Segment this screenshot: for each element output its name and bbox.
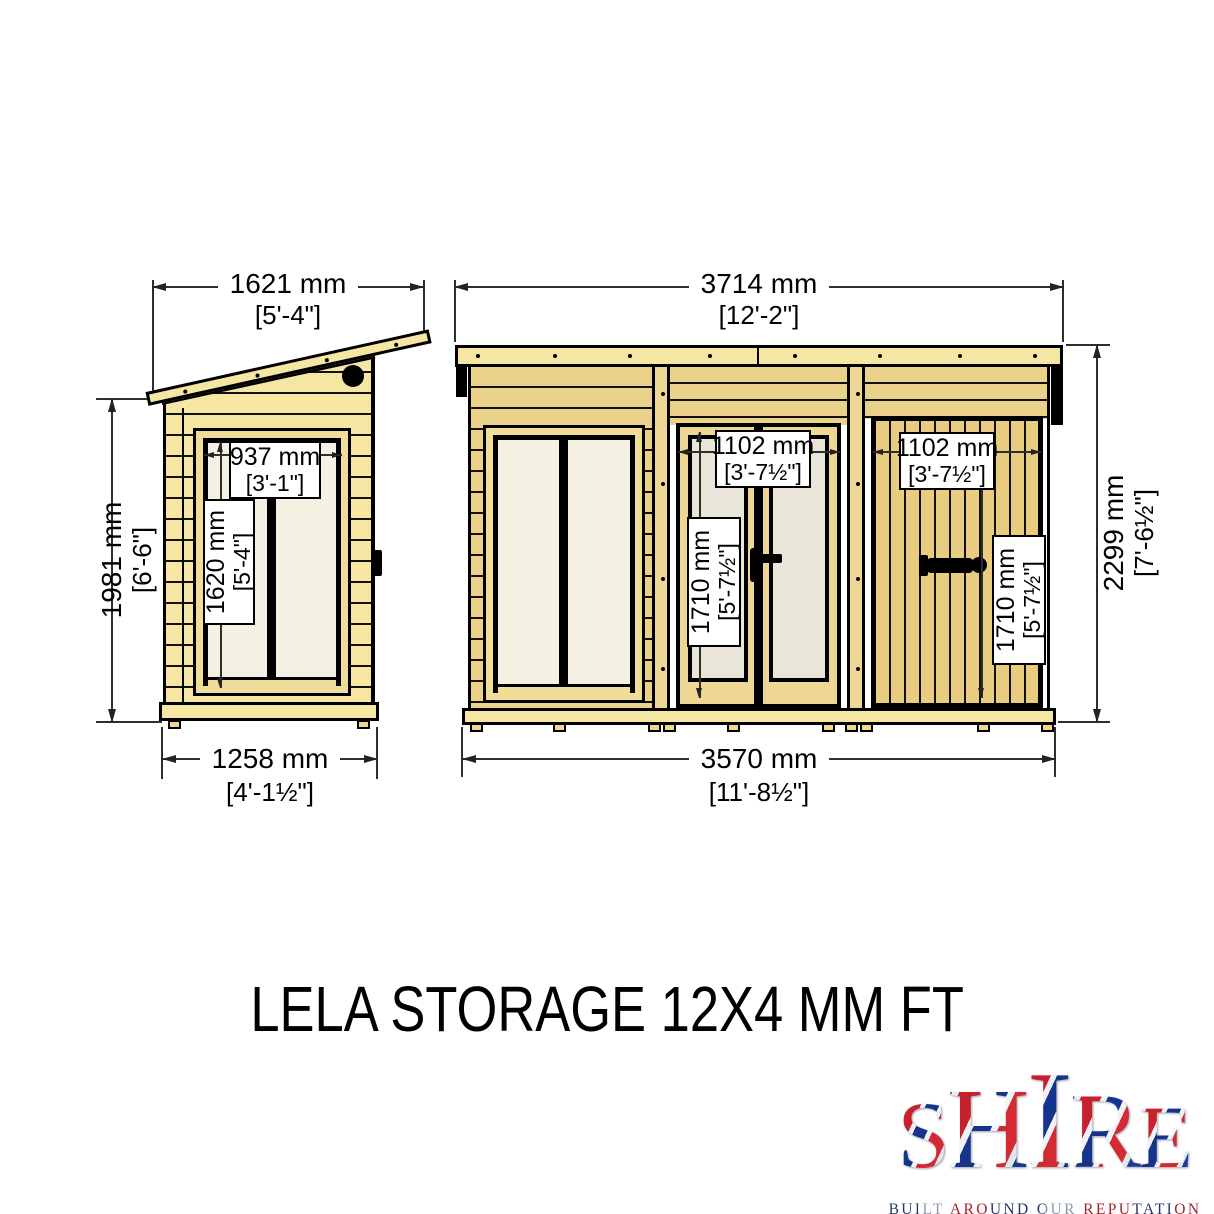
- screw-dot: [1033, 354, 1037, 358]
- fascia-seam: [757, 348, 759, 364]
- screw-dot: [856, 577, 860, 581]
- fascia-right-endcap: [1051, 367, 1063, 425]
- dim-label-mm: 3570 mm: [689, 743, 829, 774]
- side-wall-right-edge: [371, 357, 375, 702]
- drawing-title: LELA STORAGE 12X4 MM FT: [0, 972, 1214, 1046]
- shire-logo-wordmark: S H I R E: [878, 1040, 1212, 1201]
- dim-label-mm: 1102 mm: [712, 433, 814, 461]
- front-fascia-board: [455, 345, 1063, 367]
- screw-dot: [661, 392, 665, 396]
- screw-dot: [661, 577, 665, 581]
- bay-divider-trim: [847, 367, 865, 712]
- floor-bearer-foot: [357, 720, 370, 729]
- bay-divider-trim: [652, 367, 670, 712]
- door-handle-lever: [760, 554, 782, 563]
- floor-bearer-foot: [168, 720, 181, 729]
- front-base-rail: [462, 708, 1056, 725]
- dim-label-mm: 1710 mm: [993, 548, 1021, 652]
- side-corner-trim-line: [182, 408, 184, 702]
- logo-letter: R: [1070, 1071, 1141, 1194]
- dim-label-mm: 1621 mm: [218, 268, 358, 299]
- screw-dot: [324, 358, 329, 363]
- screw-dot: [856, 482, 860, 486]
- hasp-latch-eye: [971, 557, 987, 573]
- logo-letter: I: [1026, 1040, 1073, 1201]
- screw-dot: [878, 354, 882, 358]
- screw-dot: [661, 482, 665, 486]
- screw-dot: [628, 354, 632, 358]
- hasp-latch-pin: [919, 555, 928, 576]
- front-door-bay-cladding: [670, 367, 847, 425]
- drawing-title-text: LELA STORAGE 12X4 MM FT: [250, 972, 964, 1046]
- dim-label-mm: 1102 mm: [896, 435, 998, 463]
- technical-drawing-canvas: 1621 mm [5'-4"] 1981 mm [6'-6"] 937 mm […: [0, 0, 1214, 1214]
- logo-tagline: BUILT AROUND OUR REPUTATION: [878, 1201, 1212, 1214]
- hasp-latch: [927, 558, 973, 573]
- dim-label-ft: [3'-7½"]: [908, 462, 986, 487]
- front-window-sill: [498, 684, 630, 695]
- screw-dot: [553, 354, 557, 358]
- side-base-rail: [159, 702, 379, 721]
- door-handle: [750, 548, 760, 582]
- dim-label-mm: 937 mm: [230, 444, 320, 472]
- dim-label-ft: [3'-7½"]: [724, 460, 802, 485]
- screw-dot: [958, 354, 962, 358]
- dim-label-mm: 1710 mm: [688, 530, 716, 634]
- logo-letter: E: [1138, 1087, 1192, 1189]
- fascia-left-endcap: [456, 367, 467, 397]
- dim-label-ft: [5'-7½"]: [715, 543, 740, 621]
- dim-label-mm: 1981 mm: [97, 502, 128, 619]
- screw-dot: [856, 667, 860, 671]
- screw-dot: [793, 354, 797, 358]
- dim-label-mm: 1258 mm: [200, 743, 340, 774]
- screw-dot: [856, 392, 860, 396]
- screw-dot: [394, 342, 399, 347]
- dim-label-ft: [4'-1½"]: [200, 778, 340, 807]
- screw-dot: [661, 667, 665, 671]
- dim-label-ft: [5'-7½"]: [1020, 561, 1045, 639]
- front-store-bay-cladding: [865, 367, 1050, 419]
- side-wall-left-edge: [163, 403, 166, 702]
- side-door-handle: [373, 550, 382, 576]
- screw-dot: [708, 354, 712, 358]
- screw-dot: [476, 354, 480, 358]
- front-window-mullion: [559, 440, 568, 688]
- shire-logo: S H I R E BUILT AROUND OUR REPUTATION: [878, 1040, 1212, 1214]
- vent-hole: [342, 365, 364, 387]
- screw-dot: [183, 389, 188, 394]
- dim-label-ft: [5'-4"]: [230, 533, 255, 592]
- dim-label-ft: [11'-8½"]: [689, 778, 829, 807]
- logo-letter: S: [897, 1080, 950, 1190]
- dim-label-ft: [3'-1"]: [246, 471, 305, 496]
- front-wall-right-edge: [1047, 367, 1050, 712]
- screw-dot: [255, 373, 260, 378]
- dim-label-ft: [7'-6½"]: [1130, 489, 1159, 577]
- front-window: [483, 425, 645, 703]
- side-window-sill: [208, 677, 336, 688]
- dim-label-mm: 3714 mm: [689, 268, 829, 299]
- dim-label-ft: [12'-2"]: [689, 301, 829, 330]
- dim-label-ft: [5'-4"]: [218, 301, 358, 330]
- logo-letter: H: [947, 1063, 1029, 1195]
- dim-label-mm: 1620 mm: [203, 510, 231, 614]
- dim-label-ft: [6'-6"]: [128, 527, 157, 593]
- dim-label-mm: 2299 mm: [1099, 475, 1130, 592]
